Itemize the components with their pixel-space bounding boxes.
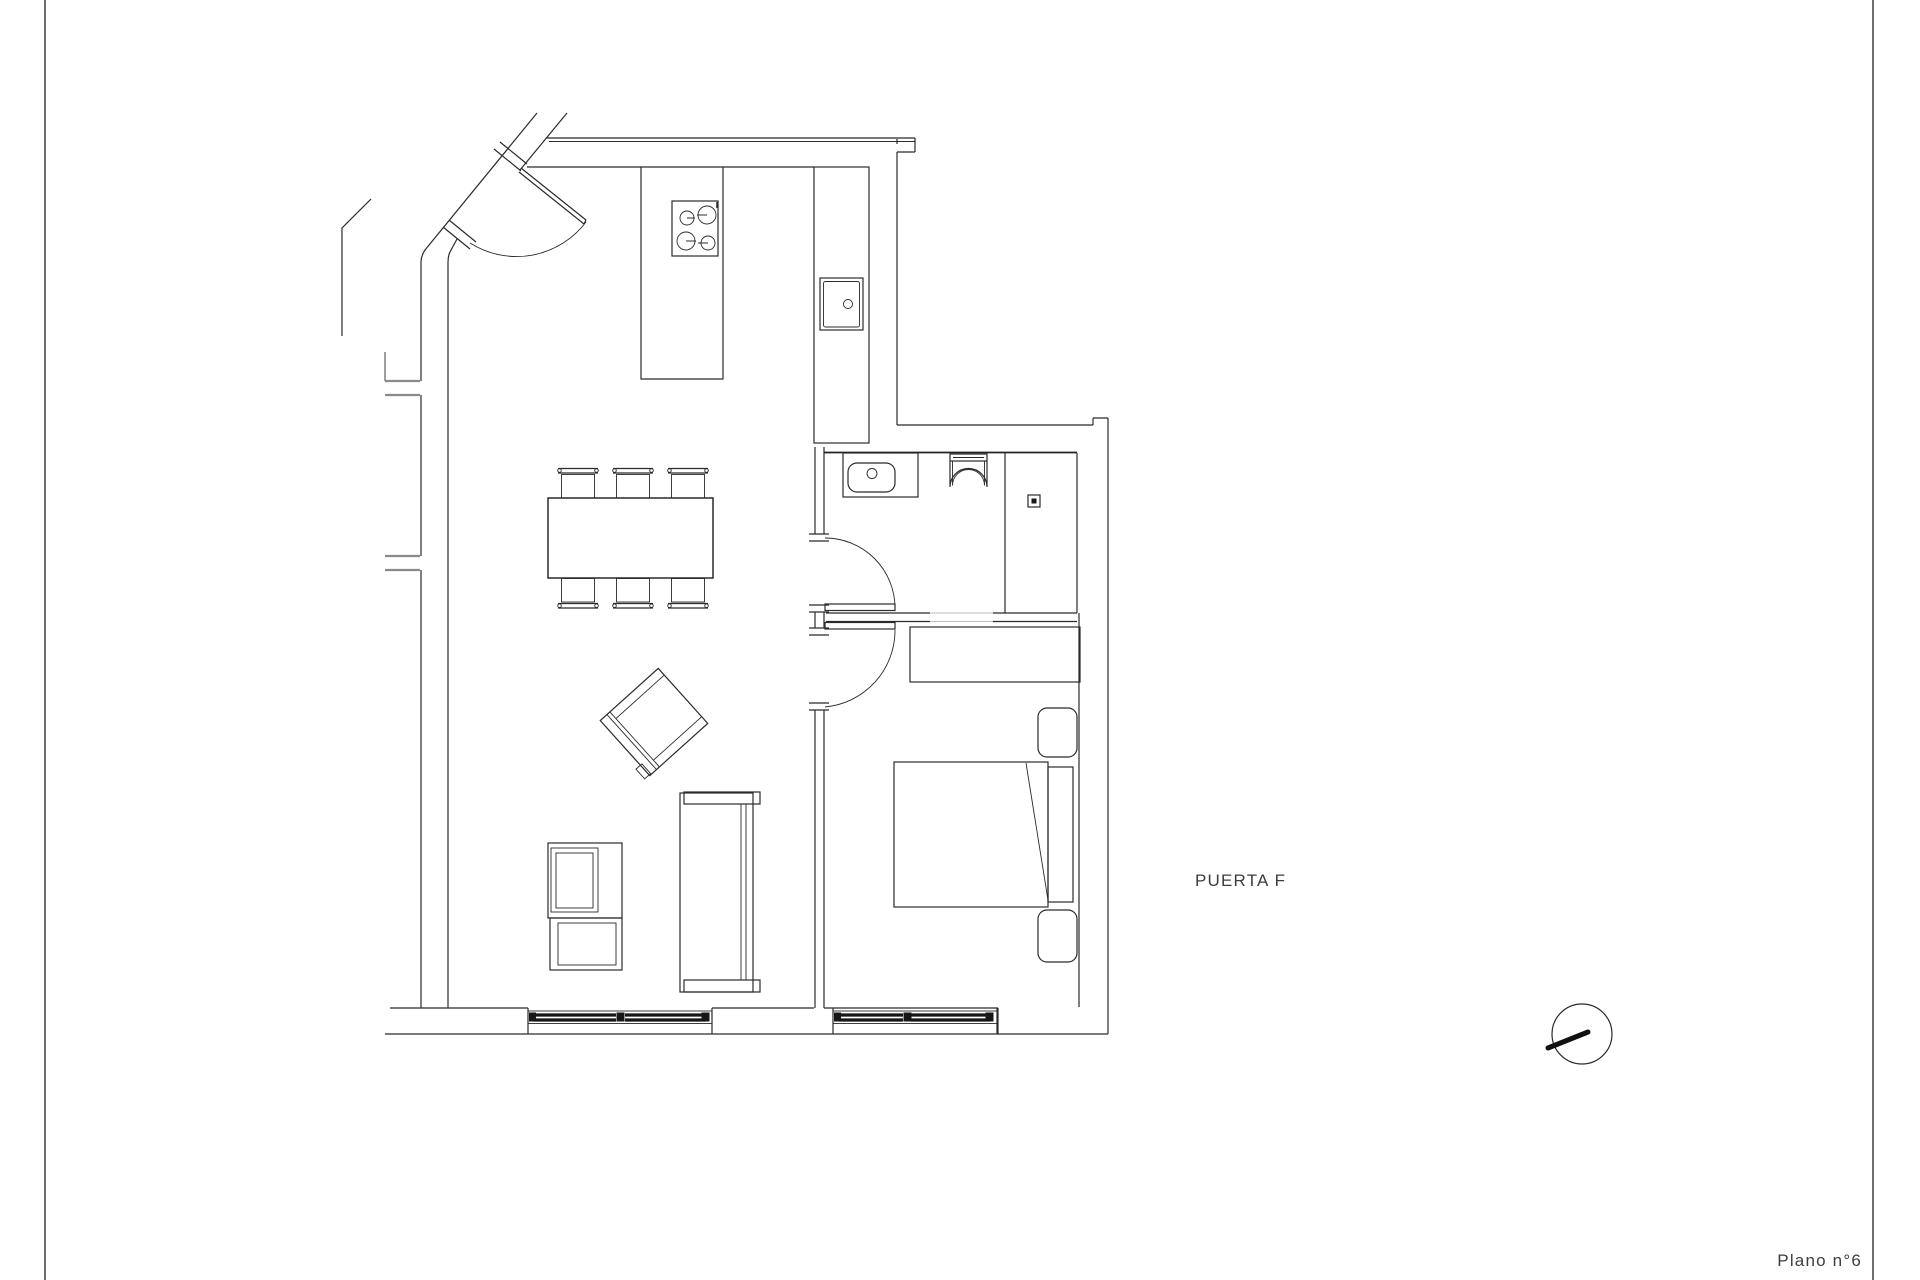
stove-burners-icon (677, 206, 716, 250)
nightstand-top (1038, 708, 1077, 757)
window-bedroom (833, 1011, 997, 1024)
entry-door-leaf (519, 168, 586, 224)
wall-left-outer (421, 113, 537, 1008)
bedroom-door (825, 623, 895, 708)
wall-bath-bed-divider-faded (930, 613, 993, 622)
nightstand-bottom (1038, 910, 1077, 962)
kitchen-island (641, 167, 723, 379)
bathroom-door (825, 538, 895, 611)
walls (342, 113, 1108, 1034)
kitchen-sink (820, 278, 863, 330)
wall-left-inner (448, 239, 457, 1008)
kitchen-sink-basin (824, 282, 860, 328)
bathroom-door-leaf (825, 604, 895, 611)
bathroom-door-swing-arc (825, 538, 895, 608)
wall-bathroom-top (897, 418, 1108, 425)
entry-door-jambs (443, 142, 527, 249)
wall-bath-bed-divider (826, 613, 1077, 622)
window-living (528, 1011, 712, 1024)
entry-door (470, 168, 586, 257)
shower-drain-icon (1028, 495, 1040, 507)
bathroom-sink-drain-icon (867, 469, 877, 479)
entry-door-swing-arc (470, 222, 586, 257)
north-compass-icon (1548, 1004, 1612, 1064)
wall-top-right-notch (897, 138, 915, 425)
sofa (680, 792, 760, 992)
neighbour-wall-fragment (342, 199, 371, 336)
dining-table (548, 498, 713, 578)
page-border-lines (45, 0, 1873, 1280)
door-label: PUERTA F (1195, 871, 1286, 890)
dining-chairs-top (558, 469, 709, 499)
wall-corridor (815, 447, 824, 1008)
toilet (950, 454, 987, 487)
bathroom-sink-basin (848, 463, 895, 492)
stove (672, 201, 718, 256)
bed-mattress (894, 762, 1048, 907)
kitchen-counter (814, 167, 869, 443)
armchair (596, 668, 708, 779)
bed-headboard (1048, 767, 1073, 902)
dining-set (548, 469, 713, 609)
bathroom-sink-counter (843, 453, 918, 497)
bathroom (843, 453, 1040, 507)
wardrobe (910, 627, 1080, 682)
bedroom (894, 627, 1080, 962)
floorplan-drawing: PUERTA F Plano n°6 (0, 0, 1920, 1280)
kitchen-sink-drain-icon (844, 300, 853, 309)
left-wall-stubs (385, 381, 420, 570)
tv-unit (548, 843, 622, 970)
plan-number-label: Plano n°6 (1777, 1251, 1862, 1270)
bedroom-door-leaf (825, 623, 895, 630)
kitchen (641, 167, 869, 443)
dining-chairs-bottom (558, 579, 709, 609)
bedroom-door-swing-arc (825, 630, 895, 707)
bed-blanket-fold (1026, 763, 1048, 900)
floorplan-page: PUERTA F Plano n°6 (0, 0, 1920, 1280)
